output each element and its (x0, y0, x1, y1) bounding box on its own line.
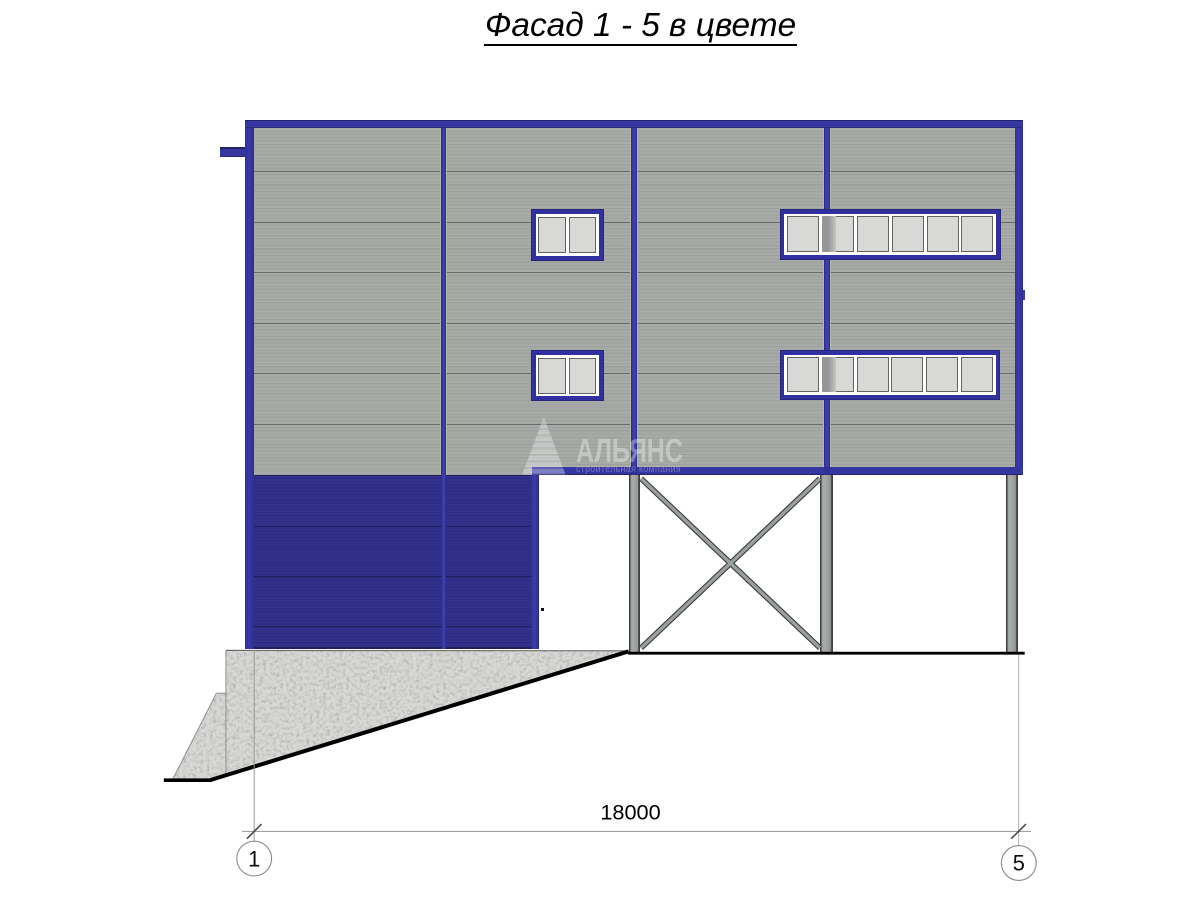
svg-text:1: 1 (248, 846, 260, 871)
svg-text:5: 5 (1013, 851, 1025, 876)
svg-text:18000: 18000 (600, 800, 660, 825)
